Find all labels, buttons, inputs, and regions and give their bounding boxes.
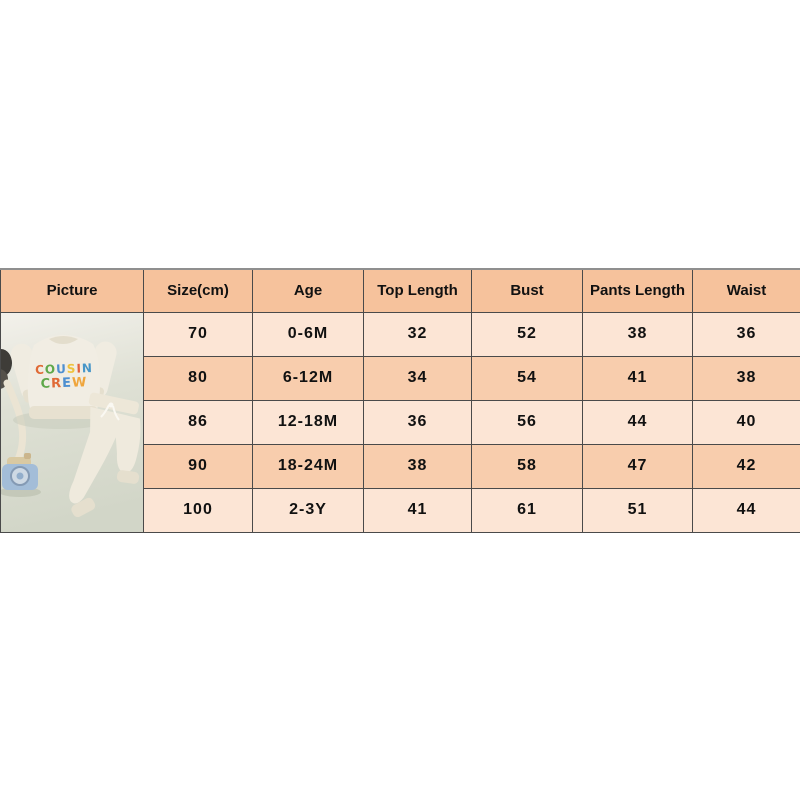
header-waist: Waist xyxy=(693,269,800,312)
header-size: Size(cm) xyxy=(144,269,253,312)
page: Picture Size(cm) Age Top Length Bust Pan… xyxy=(0,0,800,800)
cell-bust: 54 xyxy=(472,356,583,400)
cell-waist: 38 xyxy=(693,356,800,400)
cell-bust: 58 xyxy=(472,444,583,488)
header-top-length: Top Length xyxy=(364,269,472,312)
cell-bust: 56 xyxy=(472,400,583,444)
cell-waist: 40 xyxy=(693,400,800,444)
cell-pants-length: 47 xyxy=(583,444,693,488)
size-chart-table: Picture Size(cm) Age Top Length Bust Pan… xyxy=(0,268,800,533)
header-row: Picture Size(cm) Age Top Length Bust Pan… xyxy=(1,269,800,312)
cell-waist: 36 xyxy=(693,312,800,356)
cell-size: 100 xyxy=(144,488,253,532)
cell-top-length: 41 xyxy=(364,488,472,532)
header-pants-length: Pants Length xyxy=(583,269,693,312)
cell-pants-length: 41 xyxy=(583,356,693,400)
table-row: COUSIN CREW 70 0-6M 32 52 38 36 xyxy=(1,312,800,356)
cell-pants-length: 51 xyxy=(583,488,693,532)
cell-top-length: 34 xyxy=(364,356,472,400)
product-photo-cell: COUSIN CREW xyxy=(1,312,144,532)
cell-size: 80 xyxy=(144,356,253,400)
cell-top-length: 32 xyxy=(364,312,472,356)
cell-age: 0-6M xyxy=(253,312,364,356)
product-photo-graphic xyxy=(1,313,143,532)
cell-top-length: 38 xyxy=(364,444,472,488)
cell-age: 12-18M xyxy=(253,400,364,444)
cell-bust: 52 xyxy=(472,312,583,356)
cell-age: 18-24M xyxy=(253,444,364,488)
cell-waist: 42 xyxy=(693,444,800,488)
cell-age: 2-3Y xyxy=(253,488,364,532)
header-picture: Picture xyxy=(1,269,144,312)
cell-top-length: 36 xyxy=(364,400,472,444)
header-age: Age xyxy=(253,269,364,312)
cell-size: 70 xyxy=(144,312,253,356)
cell-size: 86 xyxy=(144,400,253,444)
cell-bust: 61 xyxy=(472,488,583,532)
cell-waist: 44 xyxy=(693,488,800,532)
cell-pants-length: 44 xyxy=(583,400,693,444)
cell-pants-length: 38 xyxy=(583,312,693,356)
cell-age: 6-12M xyxy=(253,356,364,400)
header-bust: Bust xyxy=(472,269,583,312)
cell-size: 90 xyxy=(144,444,253,488)
product-photo: COUSIN CREW xyxy=(1,313,143,532)
